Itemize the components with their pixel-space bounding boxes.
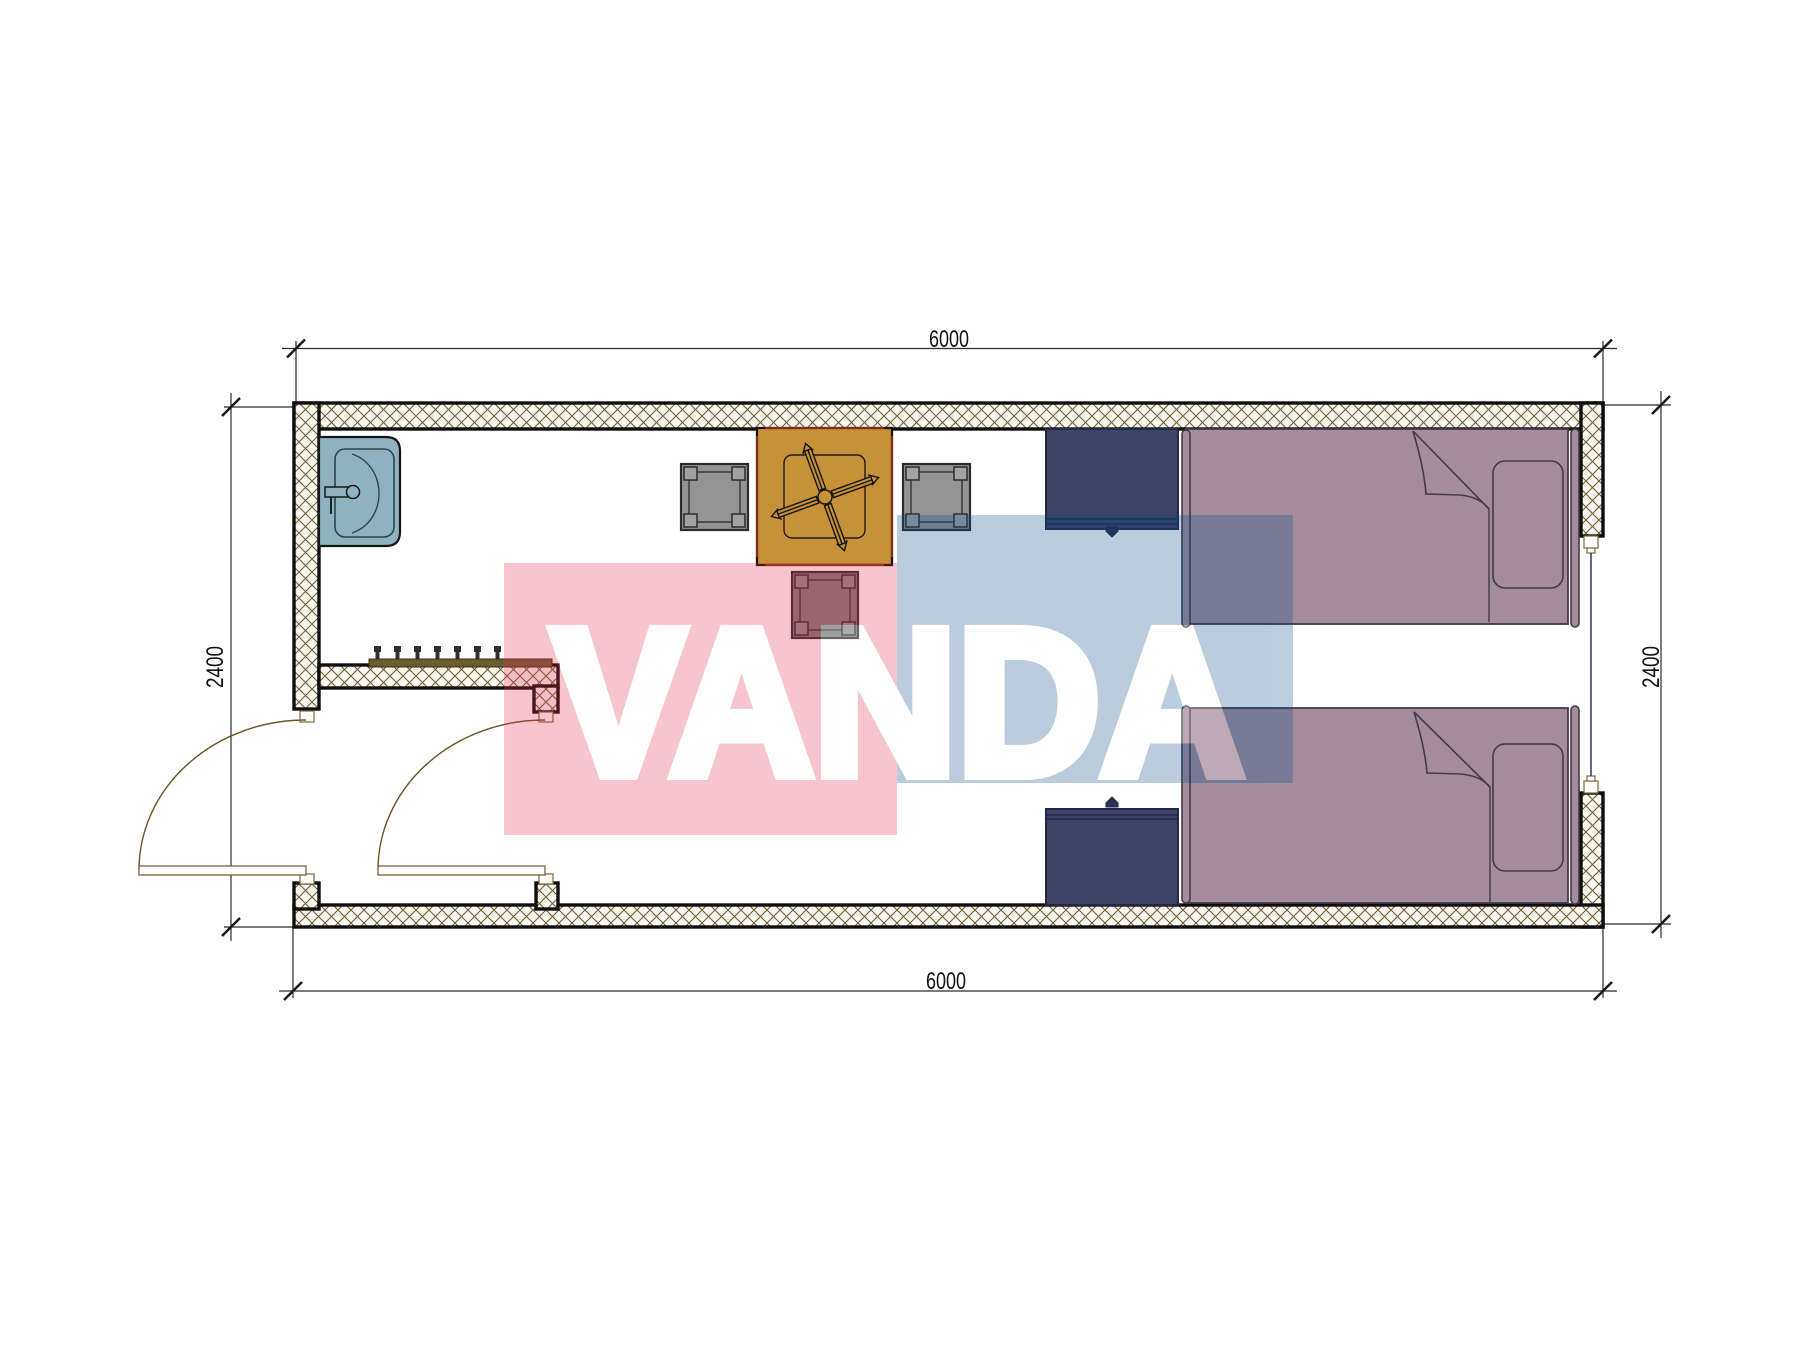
svg-text:VANDA: VANDA <box>552 587 1244 819</box>
svg-text:6000: 6000 <box>926 968 966 995</box>
svg-text:6000: 6000 <box>929 326 969 353</box>
svg-text:2400: 2400 <box>202 646 229 688</box>
svg-text:2400: 2400 <box>1638 646 1665 688</box>
